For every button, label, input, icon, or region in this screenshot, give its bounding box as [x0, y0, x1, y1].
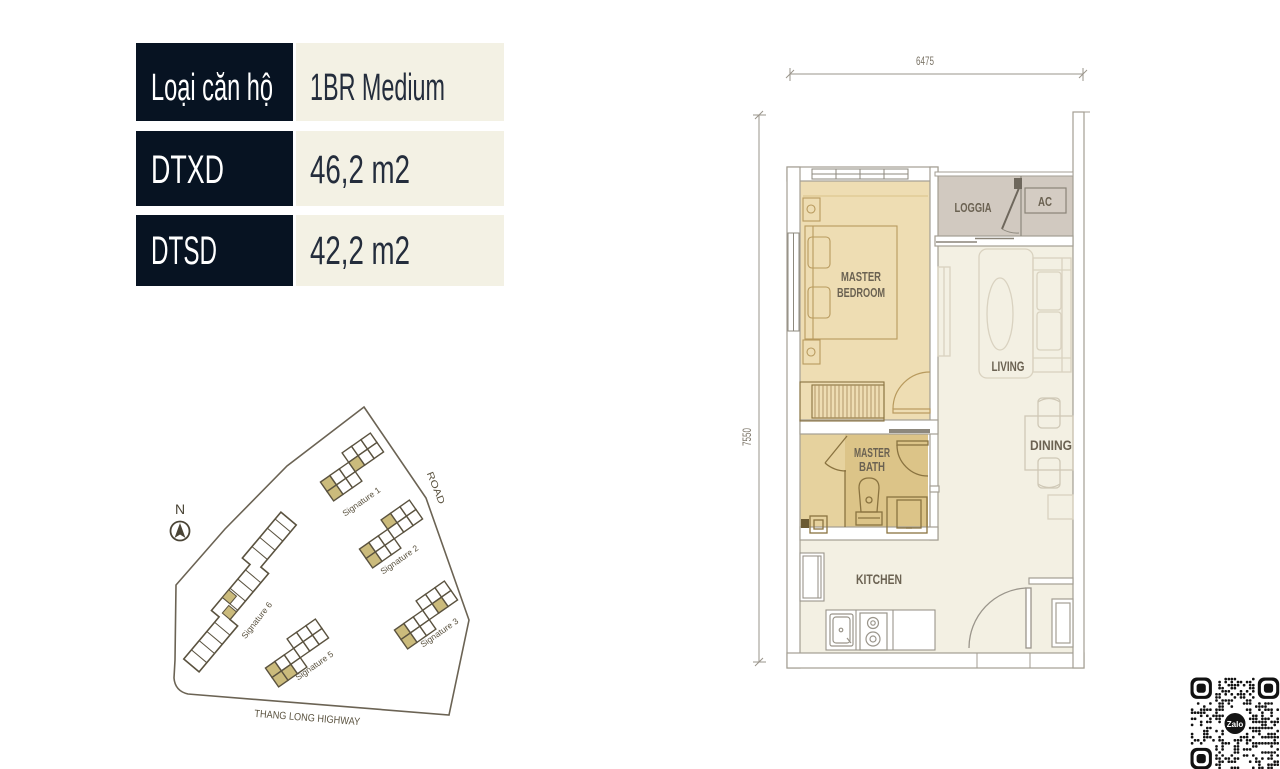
svg-text:42,2 m2: 42,2 m2	[310, 229, 410, 273]
svg-text:THANG LONG HIGHWAY: THANG LONG HIGHWAY	[254, 708, 361, 728]
svg-text:DTSD: DTSD	[151, 229, 217, 273]
svg-text:LOGGIA: LOGGIA	[955, 201, 992, 215]
svg-text:N: N	[175, 501, 185, 517]
svg-text:DINING: DINING	[1030, 438, 1072, 453]
svg-text:Signature 6: Signature 6	[239, 600, 274, 641]
svg-text:46,2 m2: 46,2 m2	[310, 148, 410, 192]
svg-text:6475: 6475	[916, 54, 934, 68]
svg-text:Zalo: Zalo	[1227, 720, 1244, 729]
svg-text:MASTER: MASTER	[854, 446, 890, 460]
svg-text:BATH: BATH	[859, 460, 885, 474]
svg-text:AC: AC	[1038, 195, 1052, 209]
svg-text:1BR Medium: 1BR Medium	[310, 67, 445, 109]
svg-text:DTXD: DTXD	[151, 148, 224, 192]
svg-text:7550: 7550	[740, 428, 754, 446]
svg-text:KITCHEN: KITCHEN	[856, 572, 902, 587]
svg-text:Loại căn hộ: Loại căn hộ	[151, 67, 273, 109]
svg-text:LIVING: LIVING	[992, 359, 1025, 374]
svg-text:MASTER: MASTER	[841, 269, 881, 284]
svg-text:BEDROOM: BEDROOM	[837, 285, 885, 300]
